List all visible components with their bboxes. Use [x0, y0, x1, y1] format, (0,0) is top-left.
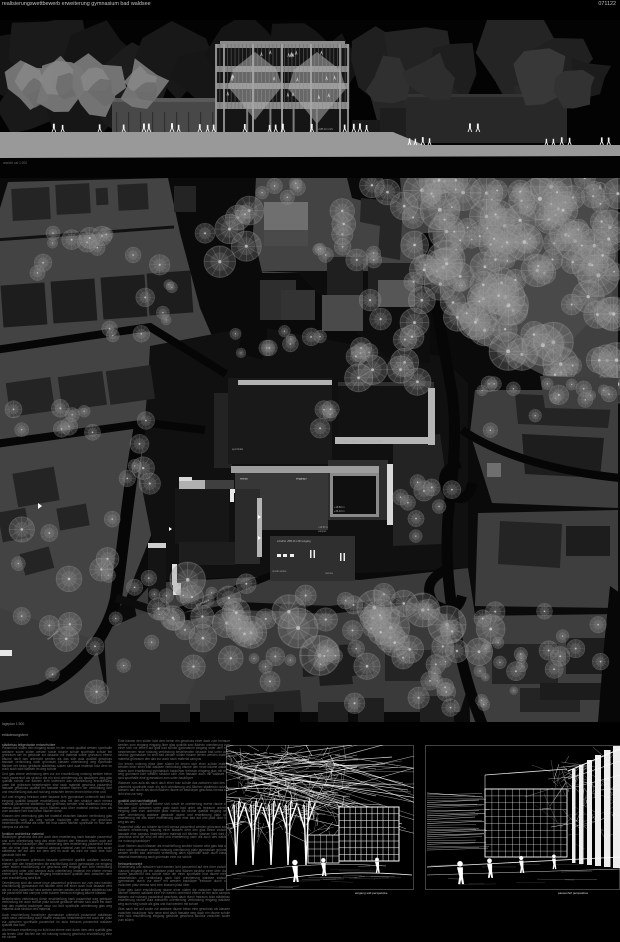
svg-text:sporthalle: sporthalle: [232, 447, 244, 451]
svg-text:eingang ▸: eingang ▸: [296, 478, 308, 481]
svg-text:+18.80 m: +18.80 m: [334, 506, 345, 509]
svg-text:ansicht ost 1:200: ansicht ost 1:200: [3, 161, 27, 165]
svg-text:mensa: mensa: [240, 478, 248, 481]
svg-text:+36.10 m: +36.10 m: [334, 510, 345, 513]
svg-text:+585.40 ü.NN: +585.40 ü.NN: [318, 128, 333, 131]
svg-text:+18.80 m: +18.80 m: [318, 526, 328, 529]
svg-text:spielplatz, außere erweiterung: spielplatz, außere erweiterung sporthall…: [340, 440, 384, 443]
svg-text:campus: campus: [318, 530, 327, 533]
svg-text:musik werke: musik werke: [272, 569, 287, 573]
svg-text:schulhof +585.40 ü.NN einga: schulhof +585.40 ü.NN eingang: [277, 540, 311, 543]
svg-text:mensa: mensa: [325, 572, 333, 575]
